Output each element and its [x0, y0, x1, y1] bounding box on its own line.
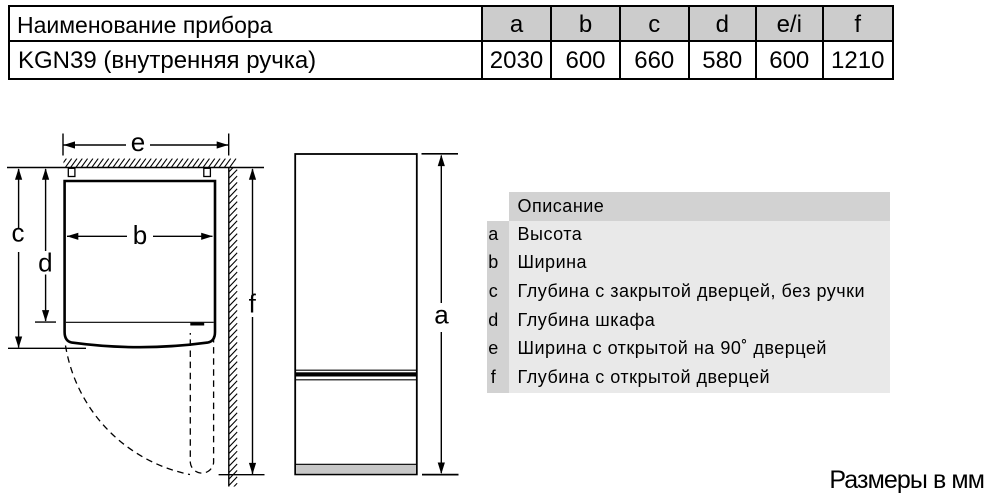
- svg-text:f: f: [249, 288, 257, 318]
- svg-text:e: e: [131, 127, 145, 157]
- svg-text:a: a: [434, 300, 449, 330]
- svg-text:b: b: [133, 220, 147, 250]
- svg-text:c: c: [12, 218, 25, 248]
- svg-text:d: d: [38, 247, 52, 277]
